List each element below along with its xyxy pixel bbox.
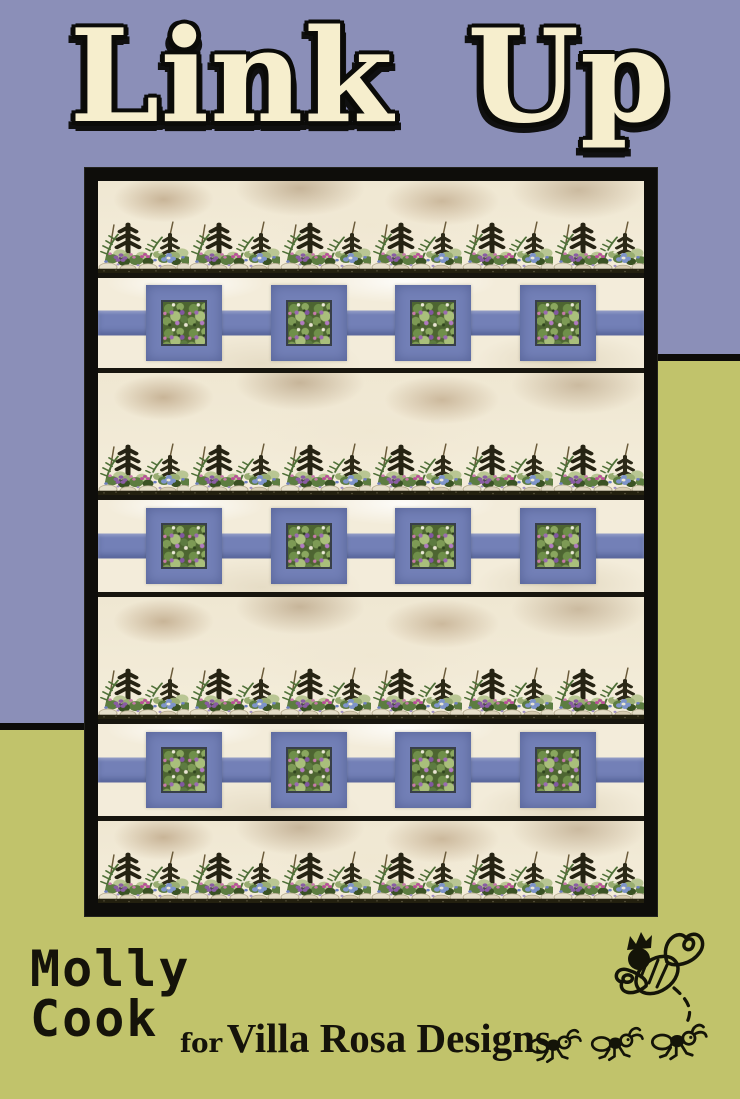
link-square-floral-center	[288, 749, 330, 791]
floral-garden-print	[98, 659, 644, 719]
author-name: Molly Cook	[30, 944, 191, 1044]
link-square-floral-center	[537, 302, 579, 344]
link-square-floral-center	[537, 525, 579, 567]
author-line-1: Molly	[30, 944, 191, 994]
brand-name: Villa Rosa Designs	[227, 1015, 551, 1061]
ant-icon	[530, 1030, 580, 1062]
link-square	[271, 285, 347, 361]
link-square	[271, 732, 347, 808]
link-square-floral-center	[163, 302, 205, 344]
page-title: Link Up	[0, 8, 740, 146]
floral-garden-print	[98, 843, 644, 903]
link-square	[520, 285, 596, 361]
link-square	[271, 508, 347, 584]
link-square	[146, 285, 222, 361]
link-square	[520, 508, 596, 584]
quilt-floral-border-strip	[98, 181, 644, 273]
link-square	[395, 285, 471, 361]
quilt-rows	[98, 181, 644, 903]
quilt-link-row	[98, 273, 644, 373]
link-square-floral-center	[163, 525, 205, 567]
link-square	[395, 508, 471, 584]
link-square-floral-center	[412, 302, 454, 344]
quilt-floral-border-strip	[98, 373, 644, 495]
link-square-floral-center	[163, 749, 205, 791]
floral-garden-print	[98, 213, 644, 273]
link-square-floral-center	[288, 302, 330, 344]
ant-icon	[592, 1028, 642, 1060]
brand-line: for Villa Rosa Designs	[180, 1014, 551, 1062]
link-square-floral-center	[288, 525, 330, 567]
byline-connector: for	[180, 1029, 222, 1059]
link-square	[146, 732, 222, 808]
quilt-floral-border-strip	[98, 597, 644, 719]
quilt-photo	[85, 168, 657, 916]
ants-marching-icon	[528, 1018, 710, 1070]
author-line-2: Cook	[30, 994, 191, 1044]
pattern-cover: Link Up Molly Cook for Villa Rosa Design…	[0, 0, 740, 1099]
floral-garden-print	[98, 435, 644, 495]
quilt-link-row	[98, 719, 644, 821]
link-square	[395, 732, 471, 808]
link-square-floral-center	[412, 525, 454, 567]
link-square-floral-center	[537, 749, 579, 791]
quilt-floral-border-strip	[98, 821, 644, 903]
link-square	[146, 508, 222, 584]
quilt-link-row	[98, 495, 644, 597]
ant-icon	[652, 1025, 706, 1059]
link-square-floral-center	[412, 749, 454, 791]
link-square	[520, 732, 596, 808]
